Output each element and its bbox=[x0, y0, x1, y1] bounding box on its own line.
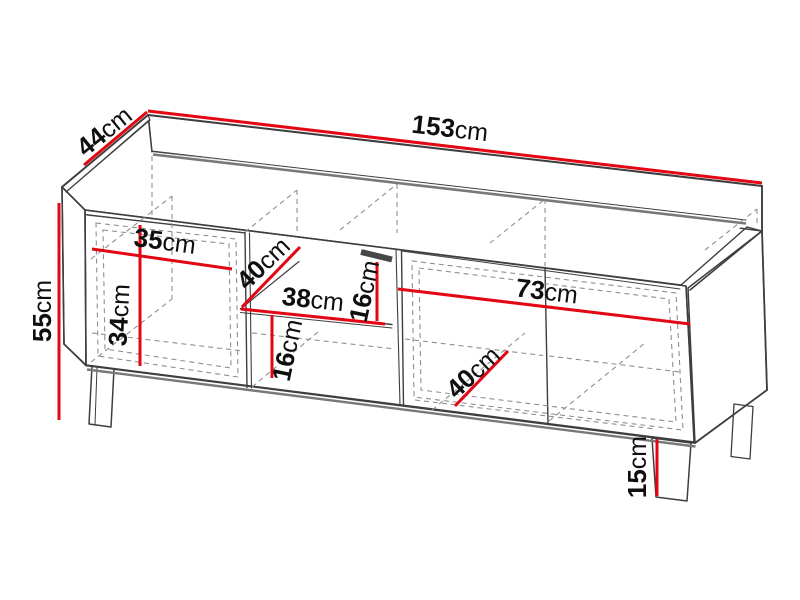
dim-label-total-width: 153cm bbox=[410, 109, 490, 147]
dim-label-leg-height: 15cm bbox=[622, 436, 652, 498]
dim-label-total-height: 55cm bbox=[27, 280, 57, 342]
tv-stand-drawing: 153cm 44cm 55cm 35cm 34cm 40cm 38cm 16cm… bbox=[0, 0, 800, 600]
front-left-leg bbox=[89, 366, 114, 427]
dim-label-interior-height: 34cm bbox=[102, 283, 135, 347]
furniture-dimension-diagram: 153cm 44cm 55cm 35cm 34cm 40cm 38cm 16cm… bbox=[0, 0, 800, 600]
back-right-leg bbox=[731, 404, 753, 459]
